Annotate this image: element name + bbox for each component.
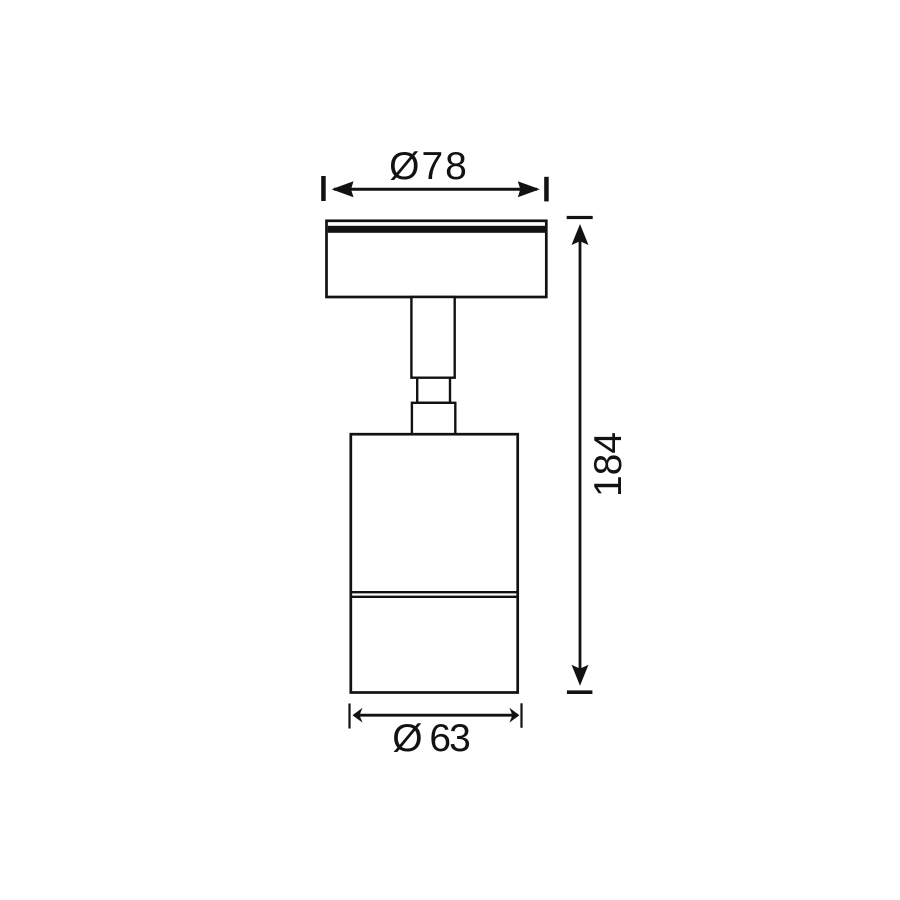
- svg-text:Ø 63: Ø 63: [392, 717, 469, 760]
- svg-text:Ø78: Ø78: [389, 145, 469, 188]
- svg-text:184: 184: [587, 432, 630, 497]
